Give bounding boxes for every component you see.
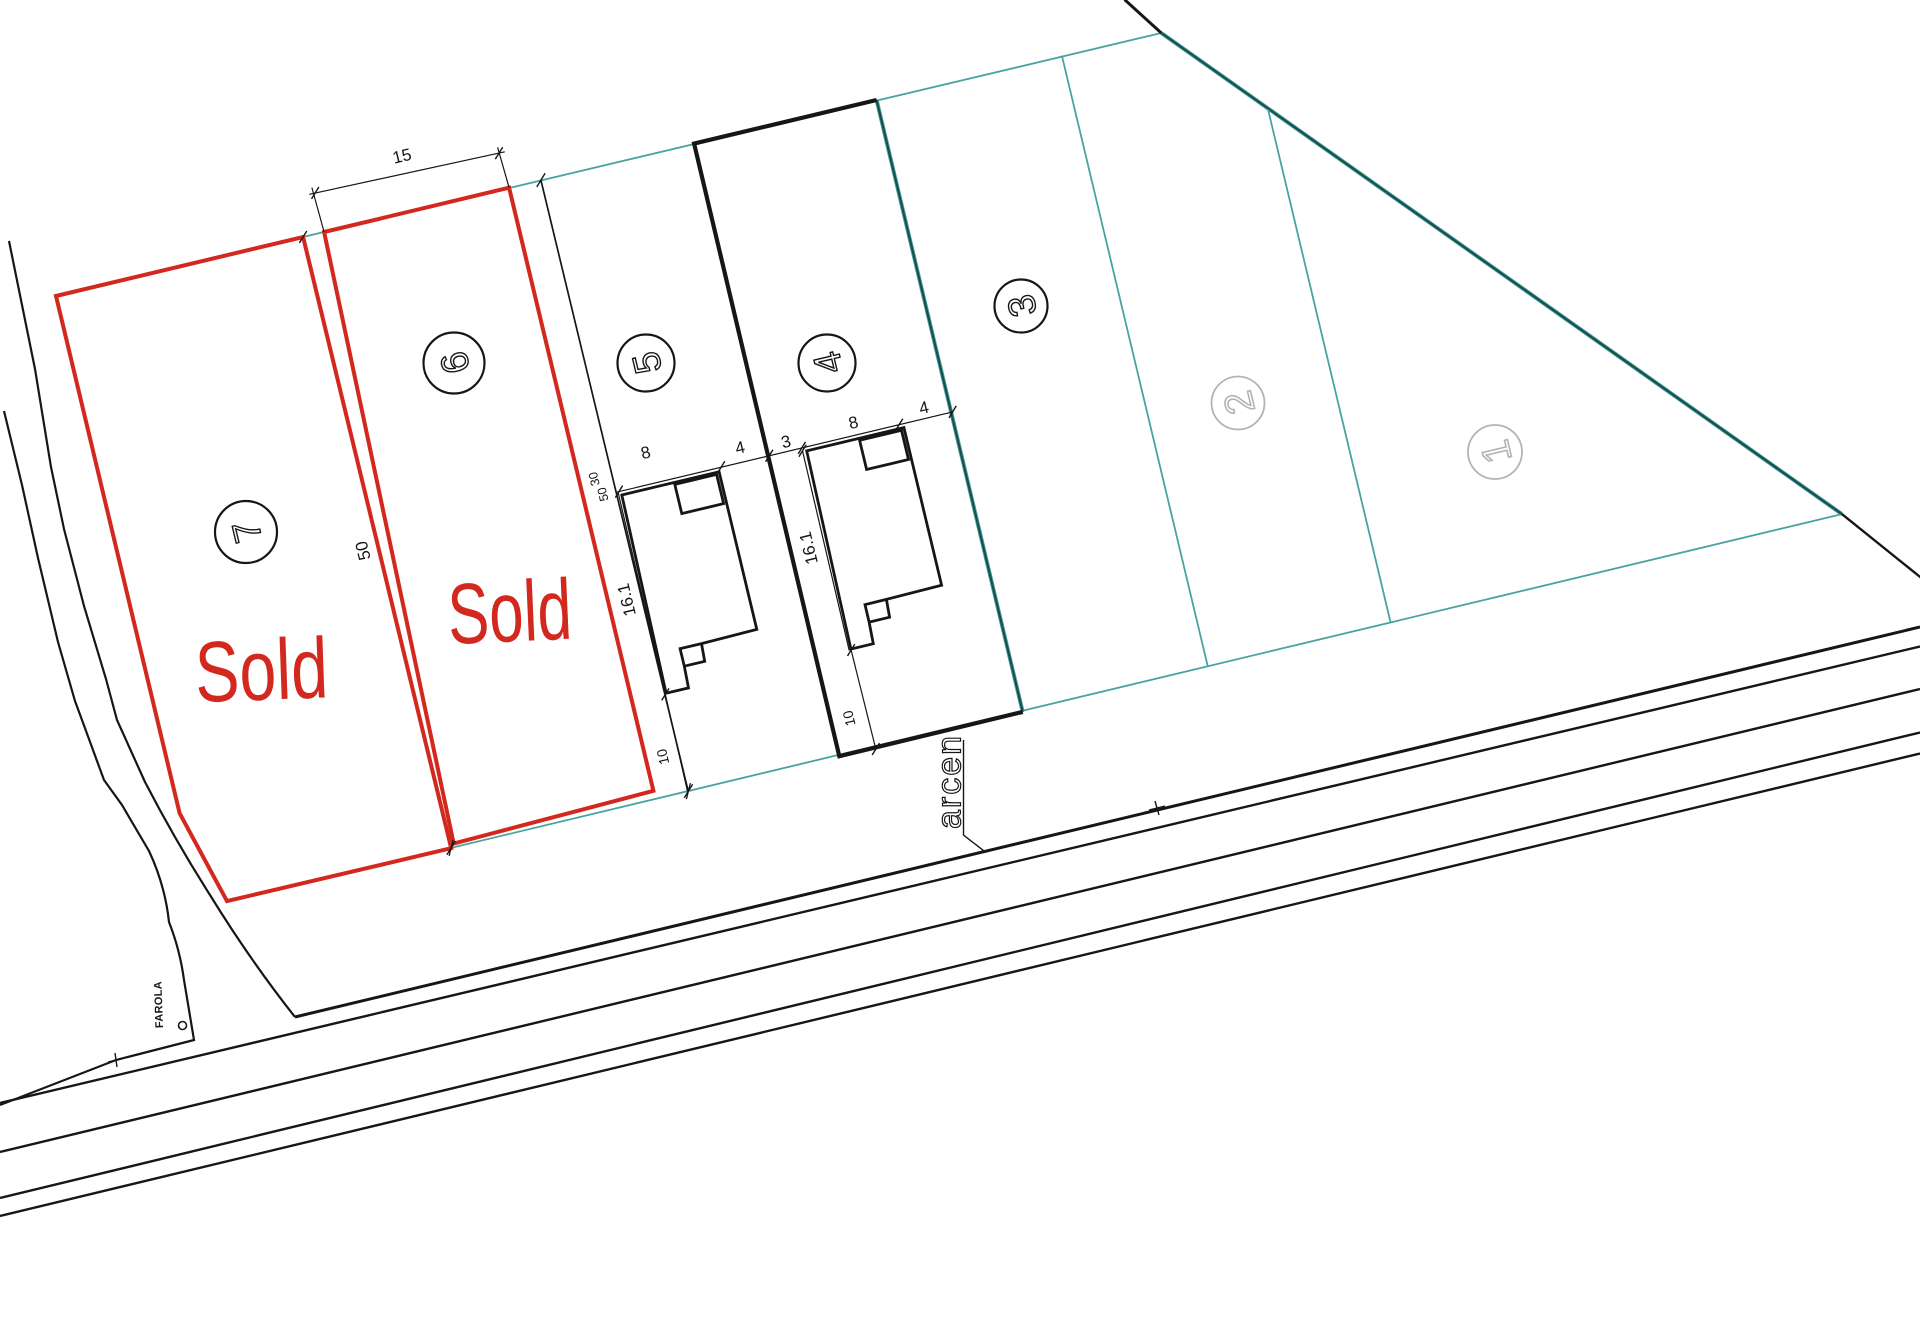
svg-text:Sold: Sold (446, 562, 574, 663)
svg-text:Sold: Sold (193, 620, 329, 721)
svg-text:FAROLA: FAROLA (152, 981, 166, 1028)
